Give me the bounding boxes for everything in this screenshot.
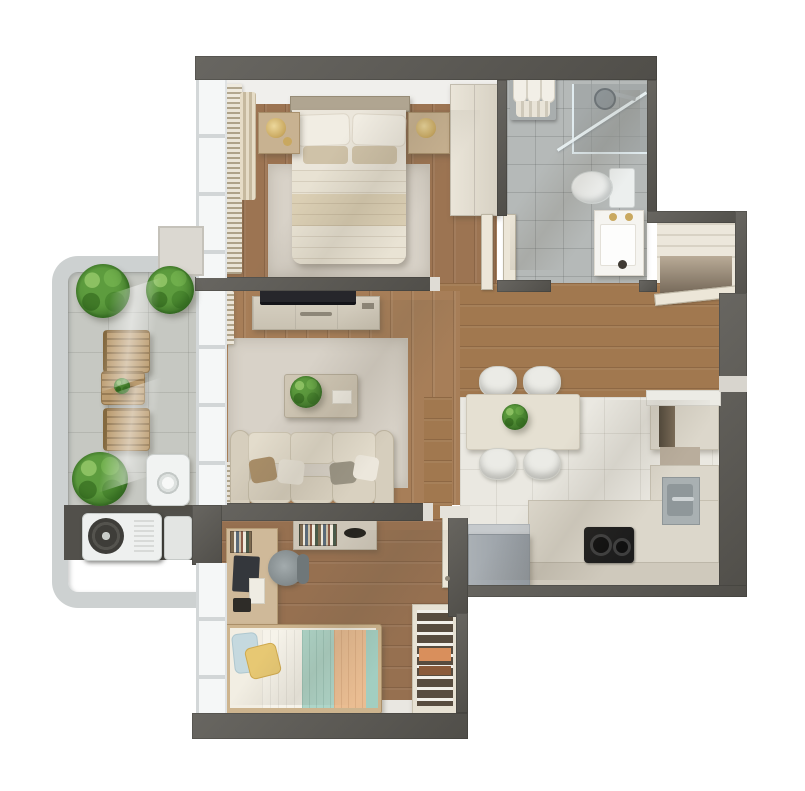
bed-pillow-right (351, 113, 406, 147)
bedroom-wardrobe (450, 84, 499, 216)
gold-dish-icon (283, 137, 292, 146)
bed-pillow-left (295, 113, 350, 147)
blanket-teal-edge (366, 630, 378, 708)
balcony-chair-top (103, 330, 150, 373)
closet-shelves (657, 223, 735, 259)
cabinet-niche (659, 405, 675, 447)
desk-books (230, 531, 252, 553)
wall-kids-top (203, 503, 425, 521)
bed-cushion-right (352, 146, 397, 164)
desk-chair-back (297, 554, 309, 584)
washing-machine (146, 454, 190, 506)
wall-bathroom-bottom (497, 280, 551, 292)
apartment-floor-plan (0, 0, 805, 791)
table-tray (332, 390, 352, 404)
utility-box (164, 516, 192, 560)
dining-table-plant (502, 404, 528, 430)
kitchen-wall-ledge (646, 390, 721, 406)
right-wall-ledge (719, 376, 747, 392)
wall-left-niche (192, 505, 222, 565)
tv-handle (300, 312, 332, 316)
shower-head-icon (594, 88, 616, 110)
cooktop-burner-icon (590, 534, 612, 556)
wall-bedroom-living-divider (195, 277, 435, 291)
wall-bedroom-bathroom (497, 80, 507, 216)
wall-closet-top (647, 211, 747, 223)
passage-floor (424, 397, 452, 519)
sink-basin (600, 224, 636, 266)
door-knob-icon (445, 576, 450, 581)
wall-bathroom-bottom-nub (639, 280, 657, 292)
throw-pillow-white (277, 459, 305, 486)
balcony-plant-bottom (72, 452, 128, 506)
folded-clothes-peach (419, 648, 451, 661)
wall-kids-column (448, 515, 468, 617)
balcony-chair-bottom (103, 408, 150, 451)
throw-pillow-brown (248, 456, 278, 484)
wall-kitchen-bottom (448, 585, 747, 597)
bedroom-door-open (481, 214, 493, 290)
table-lamp-left-icon (266, 118, 286, 138)
folded-clothes-brown (419, 666, 451, 675)
cooktop-burner-icon (613, 538, 631, 556)
blanket-teal (302, 630, 336, 708)
wall-kids-bottom (192, 713, 468, 739)
refrigerator (468, 534, 530, 586)
coffee-table-plant (290, 376, 322, 408)
throw-pillow-cream (352, 454, 380, 482)
ac-fan-icon (88, 518, 124, 554)
remote-control-icon (362, 303, 374, 309)
bed-cushion-left (303, 146, 348, 164)
hanging-towels (516, 101, 550, 117)
shelf-books (299, 524, 337, 546)
kids-top-end-cap (423, 503, 433, 521)
living-window (196, 291, 227, 505)
sofa-seat (290, 432, 334, 464)
table-lamp-right-icon (416, 118, 436, 138)
dining-chair (479, 448, 517, 480)
bed-duvet (292, 170, 406, 264)
table-plant-icon (114, 378, 130, 394)
dining-chair (523, 448, 561, 480)
sofa-armrest-left (230, 430, 250, 512)
desk-speaker-icon (233, 598, 251, 612)
wall-kids-right (456, 613, 468, 713)
divider-end-cap (430, 277, 440, 291)
gold-faucet-icon (625, 213, 633, 221)
notepad (249, 578, 265, 604)
bathroom-door-open (503, 214, 516, 288)
kids-window (196, 563, 227, 713)
wall-bathroom-right (647, 80, 657, 212)
bedroom-curtain (240, 92, 256, 200)
cosmetic-bottle-icon (618, 260, 627, 269)
blanket-peach (334, 630, 368, 708)
balcony-plant-top-right (146, 266, 194, 314)
wall-top (195, 56, 657, 80)
toilet-bowl (571, 171, 613, 204)
kids-column-cap (440, 506, 470, 518)
ac-vent-lines (134, 520, 154, 552)
balcony-plant-top-left (76, 264, 130, 318)
decor-bowl-icon (344, 528, 366, 538)
open-shelf (660, 447, 700, 465)
counter-front-face (528, 562, 719, 587)
chrome-faucet-icon (672, 497, 694, 501)
wall-right (719, 293, 747, 597)
gold-faucet-icon (609, 213, 617, 221)
